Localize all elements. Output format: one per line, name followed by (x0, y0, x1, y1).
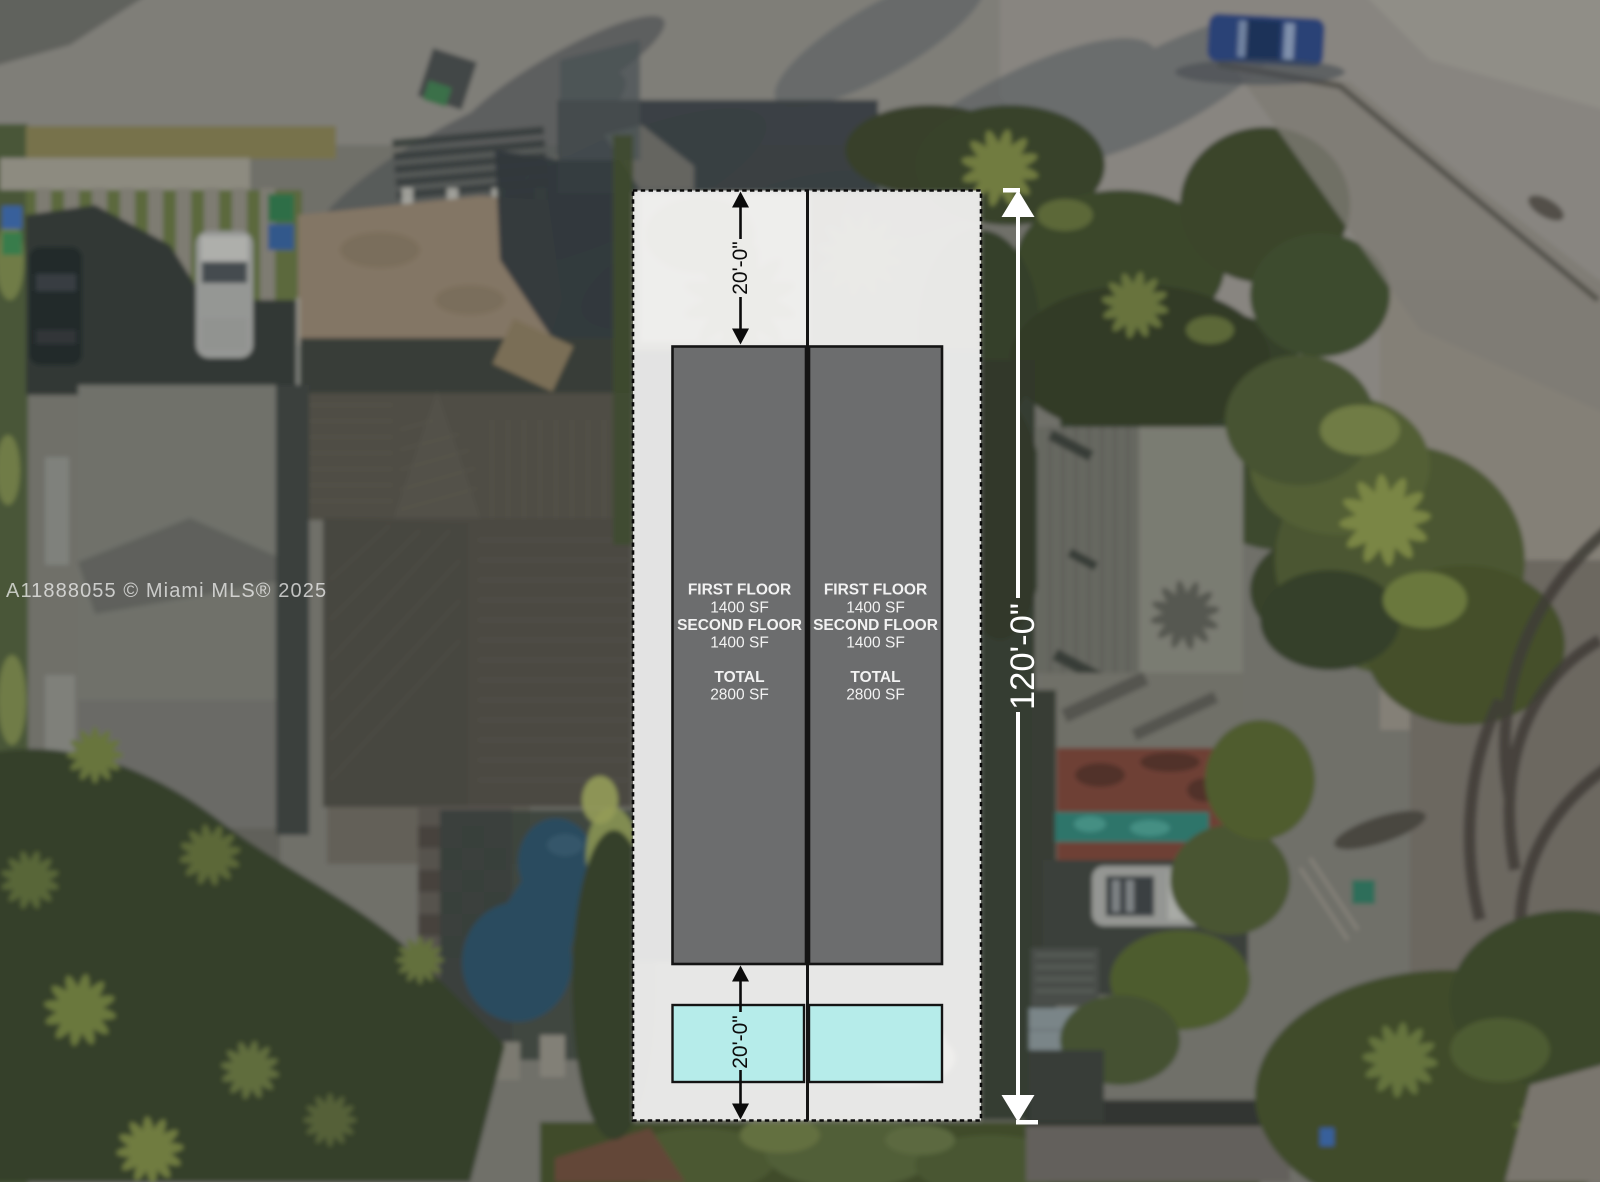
svg-text:TOTAL: TOTAL (714, 669, 764, 686)
svg-text:1400 SF: 1400 SF (710, 635, 769, 652)
svg-text:FIRST FLOOR: FIRST FLOOR (824, 582, 927, 599)
svg-text:20'-0": 20'-0" (729, 1015, 752, 1069)
svg-text:SECOND FLOOR: SECOND FLOOR (677, 617, 802, 634)
svg-text:1400 SF: 1400 SF (846, 635, 905, 652)
svg-text:2800 SF: 2800 SF (846, 687, 905, 704)
svg-text:20'-0": 20'-0" (729, 241, 752, 295)
svg-text:1400 SF: 1400 SF (846, 600, 905, 617)
svg-text:1400 SF: 1400 SF (710, 600, 769, 617)
svg-text:SECOND FLOOR: SECOND FLOOR (813, 617, 938, 634)
svg-text:120'-0": 120'-0" (1004, 603, 1042, 710)
svg-text:TOTAL: TOTAL (850, 669, 900, 686)
svg-text:2800 SF: 2800 SF (710, 687, 769, 704)
svg-text:A11888055 © Miami MLS® 2025: A11888055 © Miami MLS® 2025 (6, 580, 327, 602)
svg-text:FIRST FLOOR: FIRST FLOOR (688, 582, 791, 599)
